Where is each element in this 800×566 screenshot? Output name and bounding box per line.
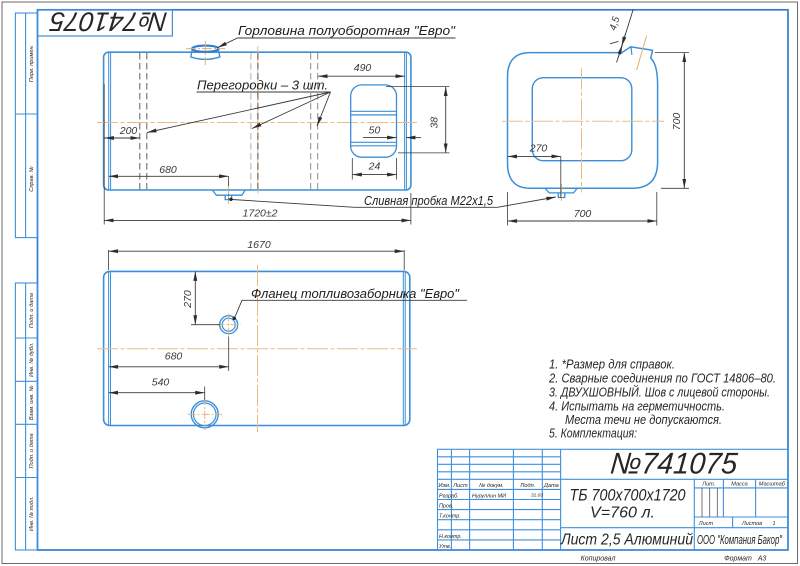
svg-text:№741075: №741075 — [47, 7, 168, 38]
svg-text:38: 38 — [429, 117, 441, 129]
svg-text:Листов: Листов — [741, 521, 762, 527]
svg-text:ООО "Компания Бакор": ООО "Компания Бакор" — [697, 533, 782, 547]
svg-text:№741075: №741075 — [609, 448, 739, 481]
svg-text:200: 200 — [119, 125, 138, 137]
svg-text:50: 50 — [369, 125, 381, 137]
svg-text:Утв.: Утв. — [438, 544, 451, 550]
svg-text:Горловина полуоборотная "Евро": Горловина полуоборотная "Евро" — [238, 23, 456, 38]
svg-text:Взам. инв. №: Взам. инв. № — [29, 385, 35, 420]
svg-text:Н.контр.: Н.контр. — [439, 534, 462, 540]
svg-text:Перв. примен.: Перв. примен. — [29, 45, 35, 82]
svg-text:1. *Размер для справок.: 1. *Размер для справок. — [549, 356, 675, 371]
svg-text:Подп.: Подп. — [520, 483, 535, 489]
svg-text:1720±2: 1720±2 — [243, 208, 278, 220]
svg-text:Инв. № дубл.: Инв. № дубл. — [29, 342, 35, 376]
svg-text:Изм.: Изм. — [439, 483, 451, 489]
svg-text:Масса: Масса — [731, 482, 748, 488]
svg-text:540: 540 — [152, 377, 170, 389]
svg-text:Лит.: Лит. — [701, 482, 715, 488]
svg-text:31.03: 31.03 — [531, 493, 543, 499]
svg-text:Подп. и дата: Подп. и дата — [29, 293, 35, 328]
svg-text:24: 24 — [368, 161, 381, 173]
svg-text:№ докум.: № докум. — [479, 483, 504, 489]
svg-text:Копировал: Копировал — [581, 556, 616, 563]
svg-text:Перегородки – 3 шт.: Перегородки – 3 шт. — [197, 78, 328, 93]
svg-text:Лист 2,5 Алюминий: Лист 2,5 Алюминий — [560, 532, 693, 549]
svg-text:Масштаб: Масштаб — [759, 482, 786, 488]
svg-text:270: 270 — [182, 290, 194, 309]
svg-text:3. ДВУХШОВНЫЙ. Шов с лицевой с: 3. ДВУХШОВНЫЙ. Шов с лицевой стороны. — [549, 383, 770, 399]
svg-text:Фланец топливозаборника "Евро": Фланец топливозаборника "Евро" — [251, 286, 460, 301]
svg-text:Т.контр.: Т.контр. — [439, 514, 461, 520]
svg-text:Формат: Формат — [724, 556, 752, 563]
svg-text:680: 680 — [159, 164, 177, 176]
svg-text:Сливная пробка М22х1,5: Сливная пробка М22х1,5 — [364, 194, 493, 208]
svg-text:Подп. и дата: Подп. и дата — [29, 433, 35, 468]
svg-text:1670: 1670 — [247, 239, 271, 251]
svg-text:Справ. №: Справ. № — [29, 166, 35, 191]
svg-text:680: 680 — [165, 351, 183, 363]
svg-text:Разраб.: Разраб. — [439, 494, 459, 500]
svg-text:ТБ 700х700х1720: ТБ 700х700х1720 — [570, 486, 686, 505]
svg-text:Инв. № подл.: Инв. № подл. — [29, 496, 35, 531]
svg-text:Дата: Дата — [543, 483, 559, 489]
svg-text:Нуруллин МИ: Нуруллин МИ — [472, 494, 506, 500]
svg-text:Лист: Лист — [452, 483, 468, 489]
svg-text:5. Комплектация:: 5. Комплектация: — [549, 426, 637, 441]
svg-text:Пров.: Пров. — [439, 504, 453, 510]
svg-text:Лист: Лист — [698, 521, 714, 527]
svg-text:2. Сварные соединения по ГОСТ: 2. Сварные соединения по ГОСТ 14806–80. — [548, 370, 776, 385]
svg-text:270: 270 — [529, 143, 548, 155]
svg-text:700: 700 — [574, 208, 592, 220]
svg-text:А3: А3 — [757, 556, 767, 563]
svg-text:1: 1 — [772, 521, 775, 527]
svg-text:V=760 л.: V=760 л. — [590, 505, 655, 522]
svg-text:490: 490 — [354, 62, 372, 74]
svg-text:700: 700 — [671, 113, 683, 131]
